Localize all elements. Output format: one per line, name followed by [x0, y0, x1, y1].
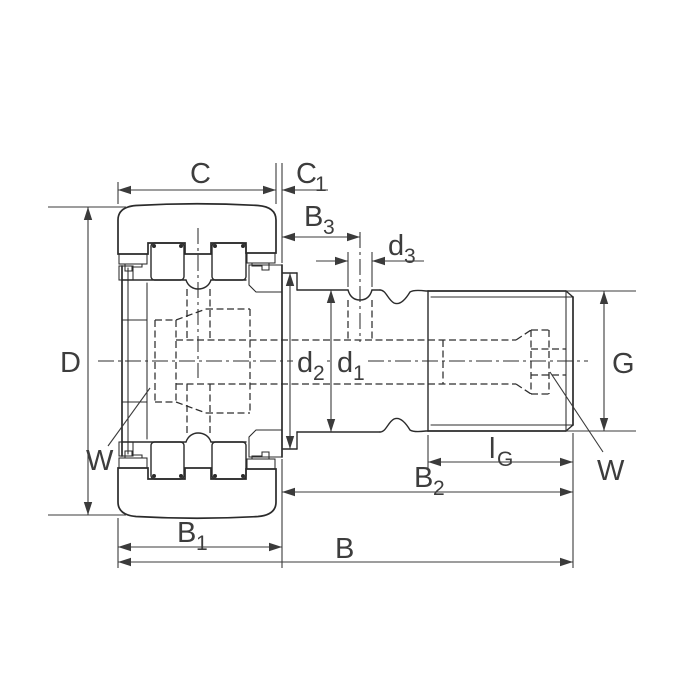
roller: [151, 243, 184, 280]
label-d1-sub: 1: [353, 362, 365, 385]
outer-ring-bottom: [118, 468, 276, 518]
roller: [151, 442, 184, 479]
label-B1: B: [177, 517, 196, 549]
end-washer: [249, 430, 282, 457]
label-B1-sub: 1: [196, 532, 208, 555]
label-lG-sub: G: [497, 448, 513, 471]
label-B3: B: [304, 201, 323, 233]
leader-W-right: [550, 372, 603, 452]
label-d1: d: [337, 347, 353, 379]
seal: [119, 458, 147, 468]
label-B2-sub: 2: [433, 477, 445, 500]
groove-bottom: [380, 418, 428, 432]
seal: [247, 253, 275, 263]
groove-top: [380, 290, 428, 304]
label-B2: B: [414, 462, 433, 494]
label-B3-sub: 3: [323, 216, 335, 239]
seal-lip: [252, 452, 269, 459]
label-W-left: W: [86, 445, 114, 477]
lube-hole-bottom: [186, 433, 211, 442]
outer-ring-top: [118, 204, 276, 254]
label-D: D: [60, 347, 81, 379]
retainer: [119, 442, 133, 456]
label-C1-sub: 1: [315, 173, 327, 196]
label-d2-sub: 2: [313, 362, 325, 385]
label-d2: d: [297, 347, 313, 379]
retainer: [119, 266, 133, 280]
seal-lip: [252, 263, 269, 270]
bearing-technical-drawing: C C 1 B 3 d 3 D W d 2 d 1 G l G B 2 B 1 …: [0, 0, 700, 700]
drawing-canvas: C C 1 B 3 d 3 D W d 2 d 1 G l G B 2 B 1 …: [0, 0, 700, 700]
label-B: B: [335, 533, 354, 565]
seal: [119, 254, 147, 264]
label-W-right: W: [597, 455, 625, 487]
leader-W-left: [108, 388, 150, 446]
label-G: G: [612, 348, 635, 380]
label-C1: C: [296, 158, 317, 190]
roller: [212, 243, 246, 280]
label-d3-sub: 3: [404, 245, 416, 268]
seal: [247, 459, 275, 469]
label-lG: l: [489, 433, 495, 465]
label-C: C: [190, 158, 211, 190]
roller: [212, 442, 246, 479]
end-washer: [249, 265, 282, 292]
label-d3: d: [388, 230, 404, 262]
outer-ring-section: [118, 204, 276, 519]
